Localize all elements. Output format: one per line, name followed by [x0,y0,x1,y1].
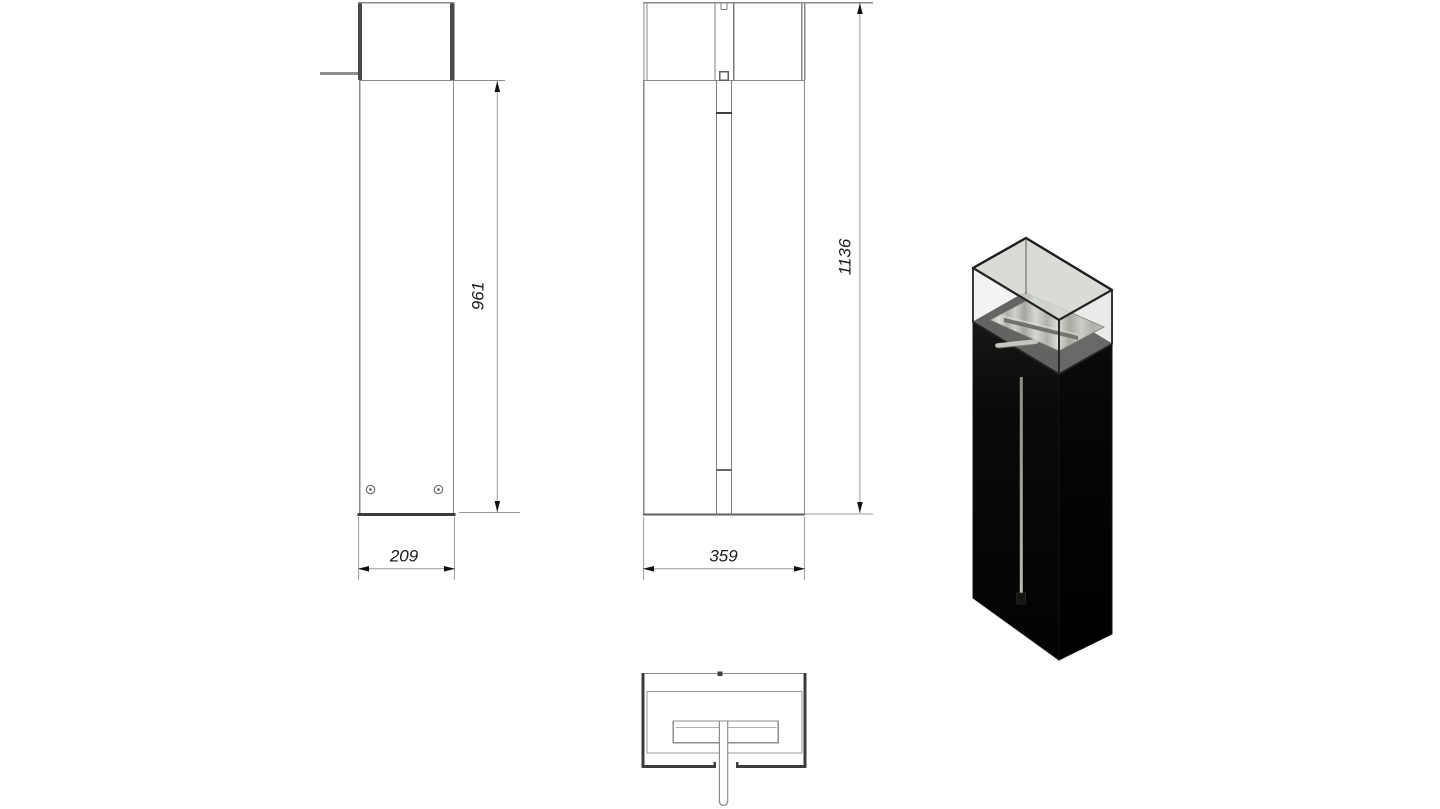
side-screw-left [366,485,374,493]
render-3d [973,238,1112,660]
side-glass-left-pane-edge [358,2,362,80]
arrowhead-down [857,502,863,513]
drawing-sheet: 961 209 [0,0,1440,809]
side-height-label: 961 [469,282,488,310]
arrowhead-right [794,566,805,572]
plan-view [641,671,806,805]
side-width-dimension: 209 [358,517,455,580]
arrowhead-right [444,566,455,572]
arrowhead-up [857,3,863,14]
plan-top-center-tick [718,671,723,676]
side-width-label: 209 [389,547,419,566]
render-body-left-face [973,322,1059,660]
plan-bottom-wall-left [641,765,715,768]
plan-gap-tick-left [713,762,716,768]
front-width-dimension: 359 [643,517,805,580]
arrowhead-down [495,501,501,512]
front-height-label: 1136 [836,238,855,275]
plan-bottom-wall-right [736,765,807,768]
front-width-label: 359 [709,547,738,566]
side-elevation-view [320,2,505,515]
plan-gap-tick-right [736,762,739,768]
render-channel-notch [1017,593,1026,604]
front-burner-cap [720,72,729,80]
plan-right-wall [804,673,807,768]
arrowhead-up [495,81,501,92]
technical-drawing-svg: 961 209 [0,0,1440,809]
plan-left-wall [641,673,644,768]
side-height-dimension: 961 [459,81,520,513]
side-glass-right-pane-edge [450,2,455,80]
side-screw-right [434,485,442,493]
render-channel-stripe [1020,377,1023,593]
front-height-dimension: 1136 [836,3,863,513]
arrowhead-left [643,566,654,572]
plan-control-rod [719,722,727,806]
arrowhead-left [358,566,369,572]
render-body-right-face [1059,344,1112,660]
